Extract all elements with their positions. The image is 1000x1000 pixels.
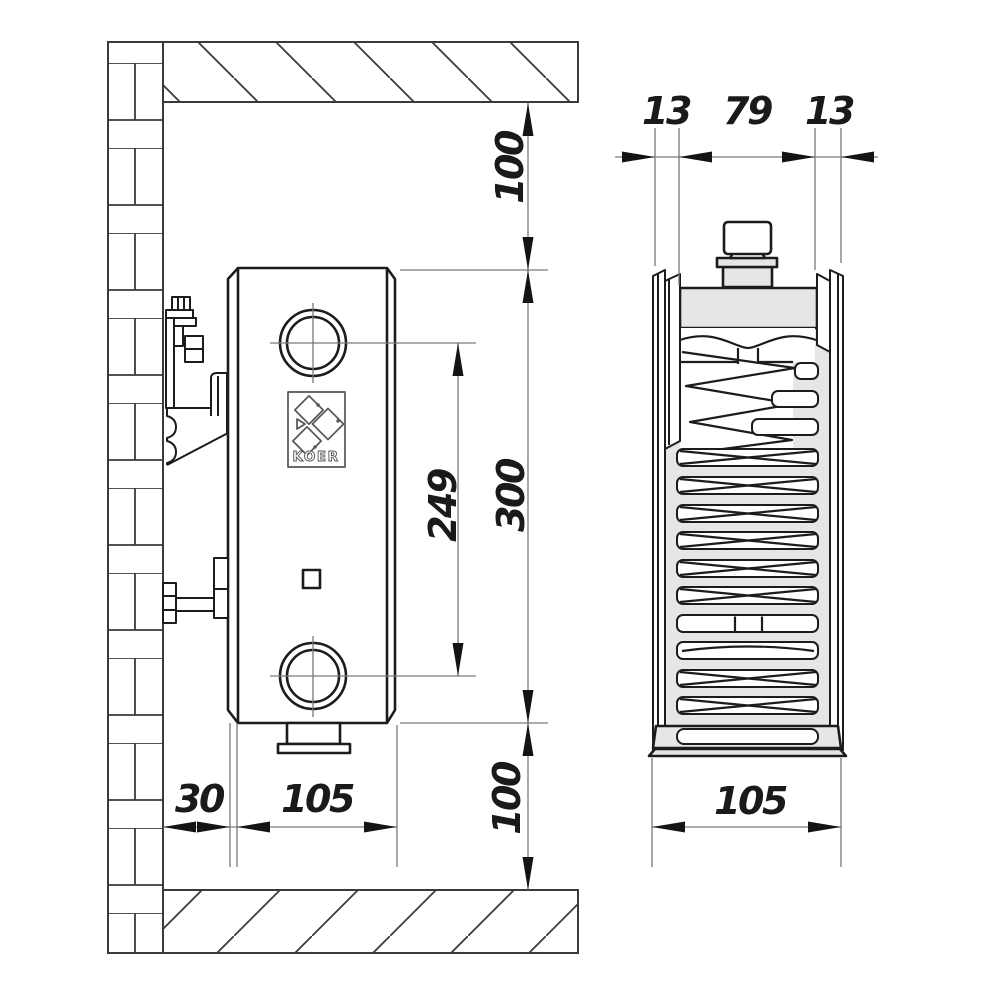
logo-text: KOER: [293, 449, 340, 465]
dim-label-back-panel: 13: [805, 89, 854, 133]
dim-label-total-depth: 105: [714, 779, 787, 823]
ceiling-hatch: [163, 42, 578, 102]
wall-bracket-bottom: [163, 558, 228, 623]
dim-label-total-height: 300: [489, 458, 533, 532]
brick-wall: [108, 42, 163, 953]
dim-wall-gap: 30: [163, 777, 397, 833]
radiator-installation-drawing: KOER 100 300 100: [0, 0, 1000, 1000]
dim-connection-spacing: 249: [421, 343, 465, 676]
dim-label-top-clearance: 100: [488, 130, 532, 204]
dim-total-depth: 105: [652, 758, 841, 867]
logo-dot: [316, 403, 319, 406]
floor-hatch: [163, 890, 578, 953]
dim-label-bottom-clearance: 100: [485, 761, 529, 835]
dim-label-depth: 105: [281, 777, 354, 821]
dim-core: 79: [679, 89, 815, 163]
dim-front-panel: 13: [622, 89, 691, 163]
vent-detail: [303, 570, 320, 588]
drawing-canvas: KOER 100 300 100: [0, 0, 1000, 1000]
dim-label-front-panel: 13: [642, 89, 691, 133]
dim-bottom-clearance: 100: [485, 723, 534, 890]
drain-stub: [278, 723, 350, 753]
dim-total-height: 300: [489, 270, 534, 723]
dim-label-wall-gap: 30: [175, 777, 225, 821]
radiator-section-view: [649, 222, 846, 756]
dim-depth: 105: [237, 777, 397, 833]
logo-dot: [336, 419, 339, 422]
section-foot: [649, 726, 846, 756]
dim-label-connection-spacing: 249: [421, 469, 465, 542]
air-vent-valve: [717, 222, 777, 287]
dim-label-core: 79: [723, 89, 772, 133]
wall-bracket-top: [166, 297, 228, 465]
section-top-tank: [680, 288, 817, 328]
